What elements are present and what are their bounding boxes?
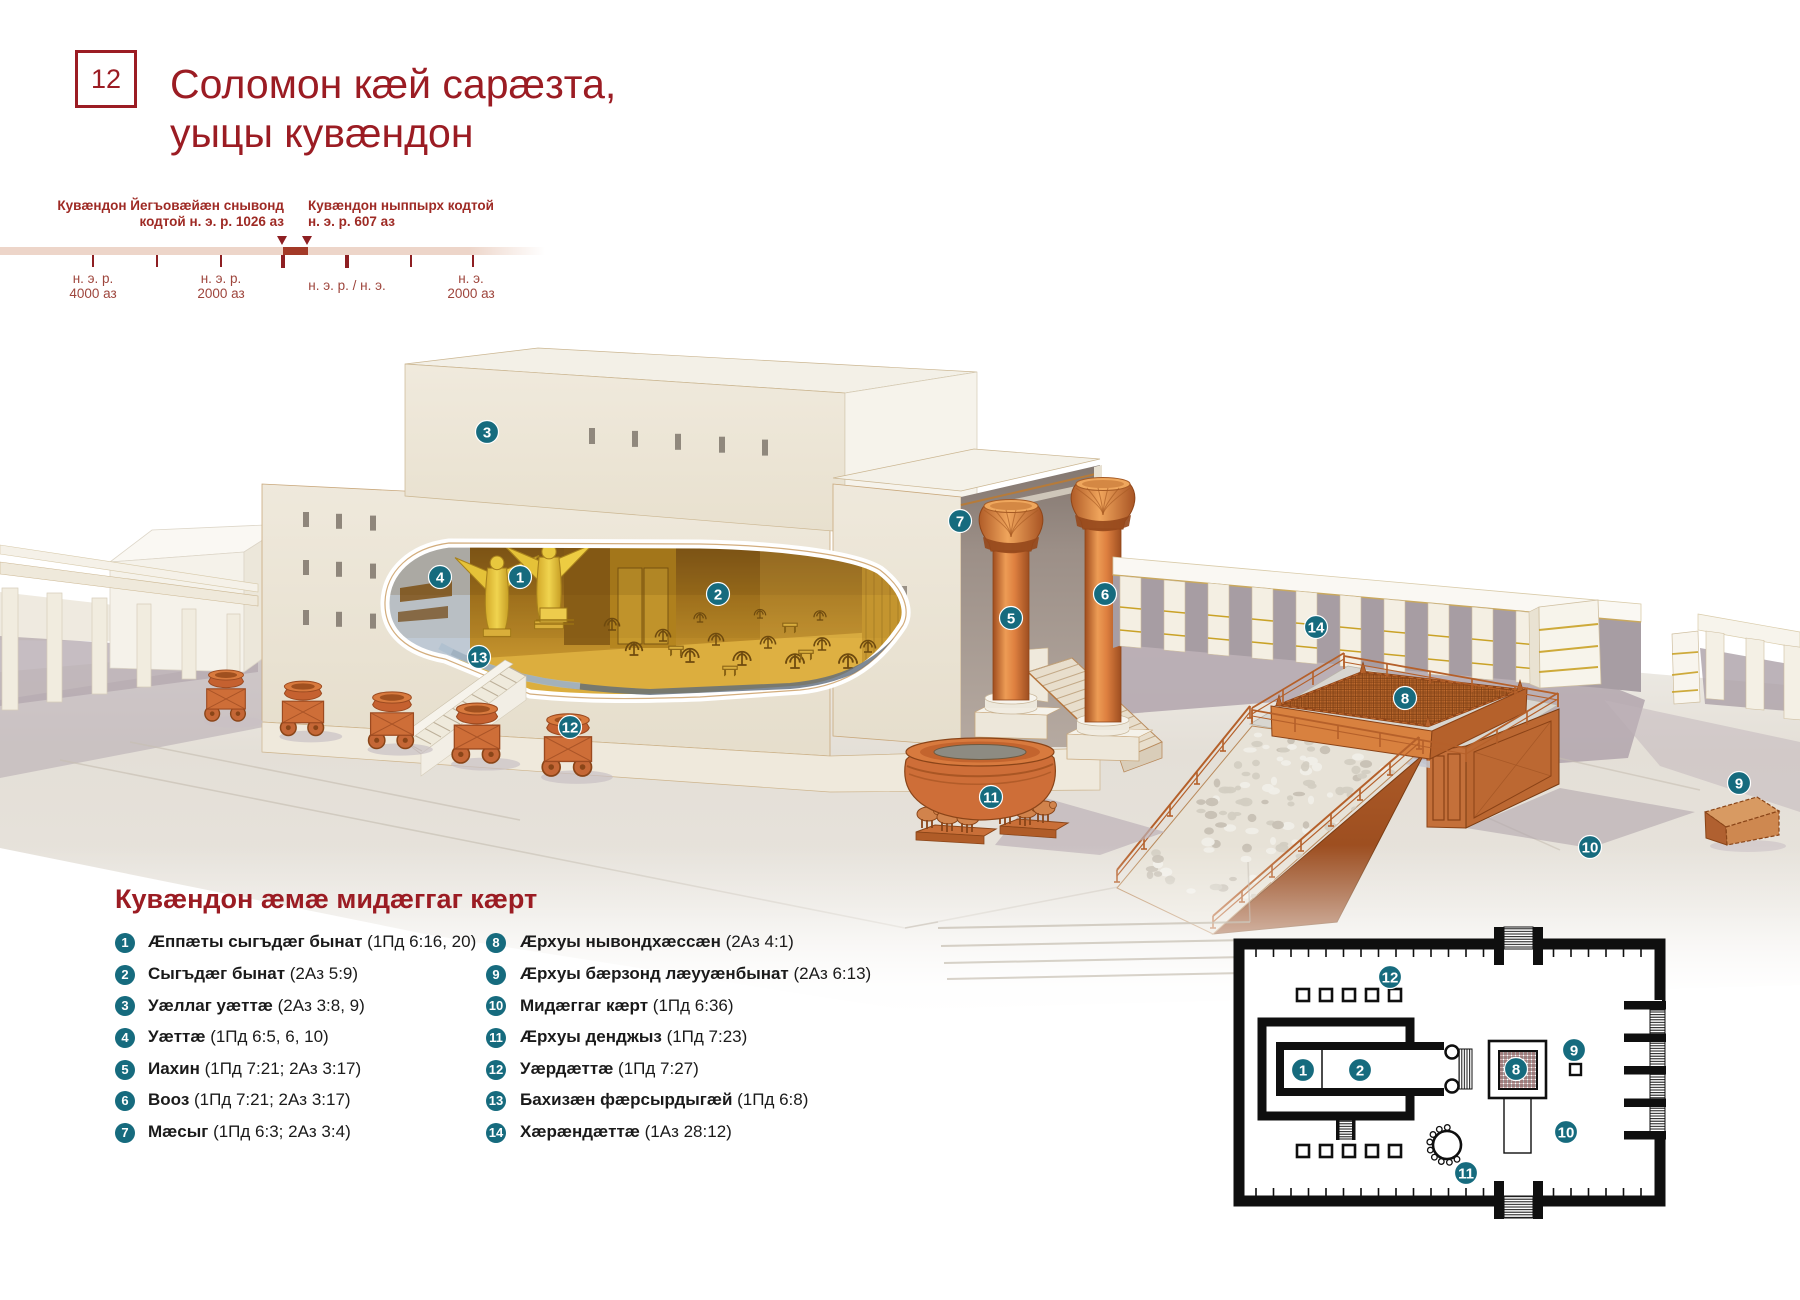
svg-text:7: 7 [956,513,964,530]
svg-text:5: 5 [1007,610,1015,627]
svg-text:9: 9 [1570,1042,1578,1059]
svg-text:11: 11 [1458,1165,1474,1182]
svg-text:10: 10 [1558,1124,1575,1141]
svg-text:4: 4 [436,569,445,586]
svg-text:2: 2 [714,586,722,603]
svg-text:14: 14 [1308,619,1325,636]
svg-text:13: 13 [471,649,488,666]
svg-text:1: 1 [516,569,524,586]
svg-text:11: 11 [983,789,999,806]
svg-text:1: 1 [1299,1062,1307,1079]
svg-text:2: 2 [1356,1062,1364,1079]
svg-text:8: 8 [1401,690,1409,707]
svg-text:9: 9 [1735,775,1743,792]
svg-text:10: 10 [1582,839,1599,856]
svg-text:12: 12 [562,719,579,736]
svg-text:3: 3 [483,424,491,441]
svg-text:12: 12 [1382,969,1399,986]
svg-text:8: 8 [1512,1061,1520,1078]
svg-text:6: 6 [1101,586,1109,603]
